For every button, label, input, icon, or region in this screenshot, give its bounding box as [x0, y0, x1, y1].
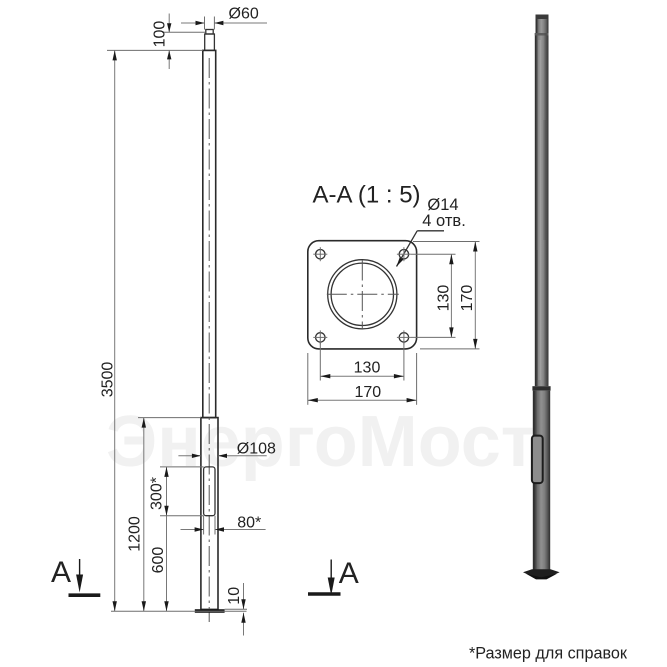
svg-text:80*: 80*	[237, 515, 261, 532]
svg-text:130: 130	[435, 285, 452, 312]
svg-text:170: 170	[459, 285, 476, 312]
svg-text:A-A (1 : 5): A-A (1 : 5)	[313, 182, 421, 209]
svg-text:170: 170	[354, 384, 381, 401]
svg-text:A: A	[339, 557, 359, 590]
svg-text:1200: 1200	[127, 516, 144, 552]
svg-text:600: 600	[150, 547, 167, 574]
svg-text:130: 130	[354, 359, 381, 376]
svg-text:300*: 300*	[148, 477, 165, 510]
svg-text:Ø108: Ø108	[237, 441, 276, 458]
svg-text:A: A	[51, 556, 71, 589]
svg-text:100: 100	[152, 21, 169, 48]
svg-text:3500: 3500	[100, 362, 117, 398]
svg-text:ЭнергоМост: ЭнергоМост	[106, 402, 536, 482]
svg-text:*Размер для справок: *Размер для справок	[469, 645, 628, 663]
svg-text:Ø60: Ø60	[229, 6, 259, 23]
svg-text:4 отв.: 4 отв.	[422, 212, 465, 230]
svg-text:10: 10	[226, 587, 243, 605]
